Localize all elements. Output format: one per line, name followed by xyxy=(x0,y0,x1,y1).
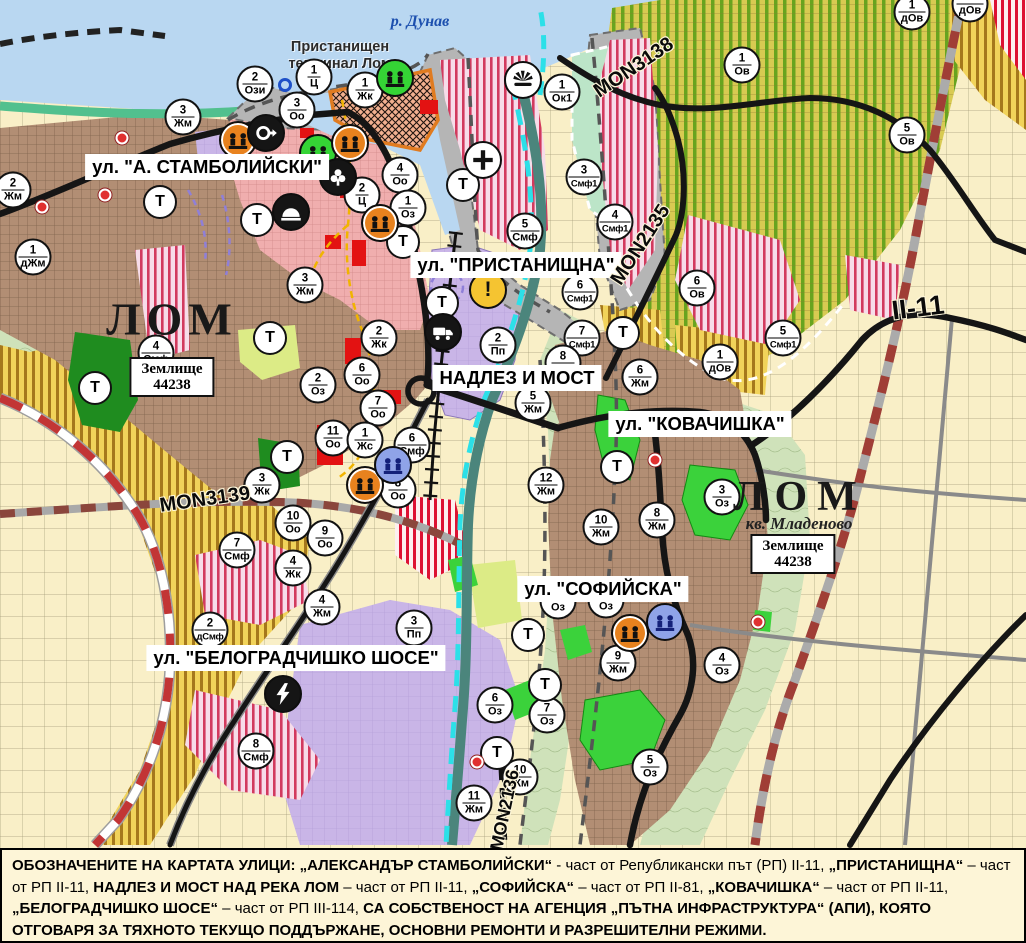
zone-number: 8 xyxy=(654,507,660,519)
zone-marker-Смф8: 8Смф xyxy=(238,733,275,770)
zone-marker-дОв1: 1дОв xyxy=(702,344,739,381)
zone-marker-дСмф2: 2дСмф xyxy=(192,612,229,649)
zone-number: 10 xyxy=(595,514,608,526)
zone-marker-дОв1: 1дОв xyxy=(894,0,931,31)
street-label: ул. "КОВАЧИШКА" xyxy=(608,411,791,437)
zone-code: дОв xyxy=(899,11,925,25)
street-label: НАДЛЕЗ И МОСТ xyxy=(432,365,601,391)
zone-marker-Ов6: 6Ов xyxy=(679,270,716,307)
zone-code: дОв xyxy=(957,3,983,17)
zone-number: 1 xyxy=(739,52,745,64)
map-overlay: р. Дунав Пристанищен терминал Лом кв. Мл… xyxy=(0,0,1026,848)
lightning-icon xyxy=(264,675,302,713)
zone-code: Оо xyxy=(315,537,334,551)
zone-code: Оо xyxy=(388,489,407,503)
zone-code: Жм xyxy=(535,484,557,498)
transformer-marker: Т xyxy=(78,371,112,405)
poi-red-dot xyxy=(99,189,112,202)
monument-icon xyxy=(331,124,369,162)
zone-number: 6 xyxy=(577,279,583,291)
caption-segment: „ПРИСТАНИЩНА“ xyxy=(829,857,964,874)
zone-code: Смф1 xyxy=(565,291,595,305)
zone-number: 3 xyxy=(411,615,417,627)
city-name-label: ЛОМ xyxy=(106,293,237,346)
land-register-box: Землище44238 xyxy=(750,534,835,574)
land-register-box: Землище44238 xyxy=(129,357,214,397)
zone-code: Смф1 xyxy=(569,176,599,190)
zone-code: Оо xyxy=(390,174,409,188)
zone-number: 3 xyxy=(294,97,300,109)
road-code-label: II-11 xyxy=(890,289,946,326)
zone-number: 5 xyxy=(647,754,653,766)
zone-code: Жм xyxy=(522,402,544,416)
zone-number: 3 xyxy=(259,472,265,484)
zone-code: Оз xyxy=(399,207,417,221)
zone-marker-Пп3: 3Пп xyxy=(396,610,433,647)
land-register-line: 44238 xyxy=(762,554,823,570)
caption-box: ОБОЗНАЧЕНИТЕ НА КАРТАТА УЛИЦИ: „АЛЕКСАНД… xyxy=(0,848,1026,943)
road-code-label: MON3138 xyxy=(590,33,678,103)
zone-marker-Оз4: 4Оз xyxy=(704,647,741,684)
zone-code: Жк xyxy=(369,337,388,351)
zone-number: 2 xyxy=(10,177,16,189)
zone-number: 1 xyxy=(311,64,317,76)
zone-code: дЖм xyxy=(18,256,47,270)
zone-number: 4 xyxy=(319,594,325,606)
road-code-label: MON3139 xyxy=(158,482,251,517)
zone-code: Смф1 xyxy=(600,221,630,235)
monument-icon xyxy=(376,59,414,97)
spring-icon xyxy=(247,114,285,152)
zone-number: 2 xyxy=(495,332,501,344)
zoning-map-lom: р. Дунав Пристанищен терминал Лом кв. Мл… xyxy=(0,0,1026,943)
zone-marker-Оз5: 5Оз xyxy=(632,749,669,786)
zone-code: Оз xyxy=(713,664,731,678)
truck-icon xyxy=(424,313,462,351)
zone-number: 7 xyxy=(579,325,585,337)
zone-code: Жм xyxy=(294,284,316,298)
zone-number: 11 xyxy=(468,790,480,802)
zone-number: 10 xyxy=(287,510,300,522)
monument-icon xyxy=(611,614,649,652)
zone-marker-Смф13: 3Смф1 xyxy=(566,159,603,196)
land-register-line: 44238 xyxy=(141,377,202,393)
transformer-marker: Т xyxy=(270,440,304,474)
transformer-marker: Т xyxy=(606,316,640,350)
zone-number: 6 xyxy=(359,362,365,374)
zone-marker-Оз7: 7Оз xyxy=(529,697,566,734)
caption-segment: - част от Републикански път (РП) II-11, xyxy=(552,857,828,874)
zone-marker-Жм3: 3Жм xyxy=(287,267,324,304)
zone-number: 1 xyxy=(362,77,368,89)
zone-code: дСмф xyxy=(195,629,226,643)
zone-number: 6 xyxy=(694,275,700,287)
zone-marker-Жм10: 10Жм xyxy=(583,509,620,546)
zone-marker-Оо6: 6Оо xyxy=(344,357,381,394)
zone-code: Жм xyxy=(172,116,194,130)
zone-code: Оо xyxy=(352,374,371,388)
zone-marker-Жм4: 4Жм xyxy=(304,589,341,626)
zone-number: 2 xyxy=(252,71,258,83)
zone-code: Ов xyxy=(897,134,916,148)
zone-number: 1 xyxy=(909,0,915,11)
church-icon xyxy=(464,141,502,179)
street-label: ул. "СОФИЙСКА" xyxy=(517,576,688,602)
zone-code: Жк xyxy=(355,89,374,103)
poi-red-dot xyxy=(116,132,129,145)
road-code-label: MON2136 xyxy=(486,768,524,853)
zone-number: 3 xyxy=(302,272,308,284)
caption-segment: – част от РП II-81, xyxy=(574,879,708,896)
zone-code: Оз xyxy=(538,714,556,728)
zone-marker-Ов5: 5Ов xyxy=(889,117,926,154)
tumulus-icon xyxy=(272,193,310,231)
zone-marker-Ози2: 2Ози xyxy=(237,66,274,103)
zone-number: 2 xyxy=(207,617,213,629)
caption-segment: – част от РП II-11, xyxy=(339,879,472,896)
zone-number: 6 xyxy=(637,364,643,376)
zone-code: Смф xyxy=(241,750,271,764)
zone-code: Смф xyxy=(222,549,252,563)
zone-number: 5 xyxy=(522,218,528,230)
zone-number: 1 xyxy=(405,195,411,207)
zone-number: 9 xyxy=(615,650,621,662)
zone-number: 1 xyxy=(717,349,723,361)
zone-marker-Оо9: 9Оо xyxy=(307,520,344,557)
zone-number: 3 xyxy=(581,164,587,176)
zone-marker-Ок11: 1Ок1 xyxy=(544,74,581,111)
city-name-label: ЛОМ xyxy=(733,473,867,521)
zone-code: Пп xyxy=(405,627,424,641)
zone-marker-Смф16: 6Смф1 xyxy=(562,274,599,311)
zone-code: Жм xyxy=(311,606,333,620)
zone-number: 7 xyxy=(544,702,550,714)
monument-icon xyxy=(646,603,684,641)
poi-red-dot xyxy=(649,454,662,467)
zone-marker-Смф15: 5Смф1 xyxy=(765,320,802,357)
zone-code: Жм xyxy=(463,802,485,816)
zone-code: Оо xyxy=(368,407,387,421)
zone-number: 12 xyxy=(540,472,553,484)
zone-code: дОв xyxy=(707,361,733,375)
zone-marker-дОв: дОв xyxy=(952,0,989,23)
zone-number: 2 xyxy=(315,372,321,384)
zone-number: 5 xyxy=(904,122,910,134)
zone-number: 3 xyxy=(180,104,186,116)
zone-number: 4 xyxy=(719,652,725,664)
zone-number: 2 xyxy=(359,182,365,194)
zone-number: 5 xyxy=(780,325,786,337)
zone-number: 8 xyxy=(253,738,259,750)
monument-icon xyxy=(374,446,412,484)
zone-code: Ц xyxy=(356,194,368,208)
zone-marker-Оо3: 3Оо xyxy=(279,92,316,129)
transformer-marker: Т xyxy=(600,450,634,484)
poi-red-dot xyxy=(36,201,49,214)
caption-segment: „СОФИЙСКА“ xyxy=(472,879,574,896)
caption-segment: – част от РП III-114, xyxy=(218,900,363,917)
zone-number: 9 xyxy=(322,525,328,537)
zone-code: Оз xyxy=(486,704,504,718)
transformer-marker: Т xyxy=(528,668,562,702)
river-label: р. Дунав xyxy=(391,13,449,31)
zone-code: Оо xyxy=(287,109,306,123)
zone-code: Жм xyxy=(607,662,629,676)
zone-number: 1 xyxy=(559,79,565,91)
zone-code: Оз xyxy=(549,600,567,614)
zone-number: 11 xyxy=(327,425,339,437)
zone-code: Смф1 xyxy=(768,337,798,351)
zone-number: 3 xyxy=(719,484,725,496)
street-label: ул. "БЕЛОГРАДЧИШКО ШОСЕ" xyxy=(146,645,445,671)
zone-code: Ов xyxy=(687,287,706,301)
zone-marker-Жм8: 8Жм xyxy=(639,502,676,539)
zone-marker-Жк2: 2Жк xyxy=(361,320,398,357)
zone-marker-Жм12: 12Жм xyxy=(528,467,565,504)
street-label: ул. "А. СТАМБОЛИЙСКИ" xyxy=(85,154,329,180)
zone-marker-Смф14: 4Смф1 xyxy=(597,204,634,241)
zone-code: Жм xyxy=(2,189,24,203)
poi-red-dot xyxy=(471,756,484,769)
zone-number: 4 xyxy=(612,209,618,221)
zone-marker-Смф7: 7Смф xyxy=(219,532,256,569)
zone-code: Смф xyxy=(510,230,540,244)
zone-number: 1 xyxy=(30,244,36,256)
monument-icon xyxy=(361,204,399,242)
poi-red-dot xyxy=(752,616,765,629)
zone-marker-Жм11: 11Жм xyxy=(456,785,493,822)
zone-code: Ози xyxy=(243,83,268,97)
zone-code: Жм xyxy=(590,526,612,540)
zone-marker-Пп2: 2Пп xyxy=(480,327,517,364)
zone-marker-Ов1: 1Ов xyxy=(724,47,761,84)
zone-marker-Жм6: 6Жм xyxy=(622,359,659,396)
zone-number: 8 xyxy=(560,350,566,362)
transformer-marker: Т xyxy=(253,321,287,355)
transformer-marker: Т xyxy=(143,185,177,219)
land-register-line: Землище xyxy=(762,538,823,554)
zone-code: Оз xyxy=(713,496,731,510)
land-register-line: Землище xyxy=(141,361,202,377)
zone-code: Ок1 xyxy=(550,91,574,105)
zone-marker-Ц1: 1Ц xyxy=(296,59,333,96)
zone-marker-Оо4: 4Оо xyxy=(382,157,419,194)
transformer-marker: Т xyxy=(480,736,514,770)
zone-number: 4 xyxy=(290,555,296,567)
zone-marker-Жк4: 4Жк xyxy=(275,550,312,587)
zone-number: 5 xyxy=(530,390,536,402)
transformer-marker: Т xyxy=(240,203,274,237)
zone-number: 6 xyxy=(492,692,498,704)
zone-number: 2 xyxy=(376,325,382,337)
zone-marker-Оз6: 6Оз xyxy=(477,687,514,724)
zone-number: 1 xyxy=(362,427,368,439)
street-label: ул. "ПРИСТАНИЩНА" xyxy=(410,252,621,278)
caption-segment: „БЕЛОГРАДЧИШКО ШОСЕ“ xyxy=(12,900,218,917)
zone-number: 4 xyxy=(397,162,403,174)
zone-code: Жк xyxy=(283,567,302,581)
zone-number: 7 xyxy=(234,537,240,549)
zone-marker-дЖм1: 1дЖм xyxy=(15,239,52,276)
zone-code: Оз xyxy=(641,766,659,780)
transformer-marker: Т xyxy=(511,618,545,652)
zone-number: 7 xyxy=(375,395,381,407)
caption-segment: „КОВАЧИШКА“ xyxy=(708,879,820,896)
zone-code: Оо xyxy=(323,437,342,451)
zone-code: Ов xyxy=(732,64,751,78)
caption-segment: ОБОЗНАЧЕНИТЕ НА КАРТАТА УЛИЦИ: „АЛЕКСАНД… xyxy=(12,857,552,874)
caption-segment: НАДЛЕЗ И МОСТ НАД РЕКА ЛОМ xyxy=(93,879,339,896)
zone-marker-Оз2: 2Оз xyxy=(300,367,337,404)
zone-marker-Жм3: 3Жм xyxy=(165,99,202,136)
zone-code: Пп xyxy=(489,344,508,358)
zone-marker-Смф5: 5Смф xyxy=(507,213,544,250)
zone-code: Жм xyxy=(646,519,668,533)
zone-code: Оз xyxy=(309,384,327,398)
zone-marker-Жм2: 2Жм xyxy=(0,172,32,209)
zone-code: Оо xyxy=(283,522,302,536)
zone-code: Жм xyxy=(629,376,651,390)
zone-code: Жк xyxy=(252,484,271,498)
portfan-icon xyxy=(504,61,542,99)
zone-code: Жс xyxy=(355,439,375,453)
poi-blue-ring xyxy=(278,78,292,92)
zone-number: 6 xyxy=(409,432,415,444)
zone-code: Ц xyxy=(308,76,320,90)
caption-segment: – част от РП II-11, xyxy=(820,879,948,896)
